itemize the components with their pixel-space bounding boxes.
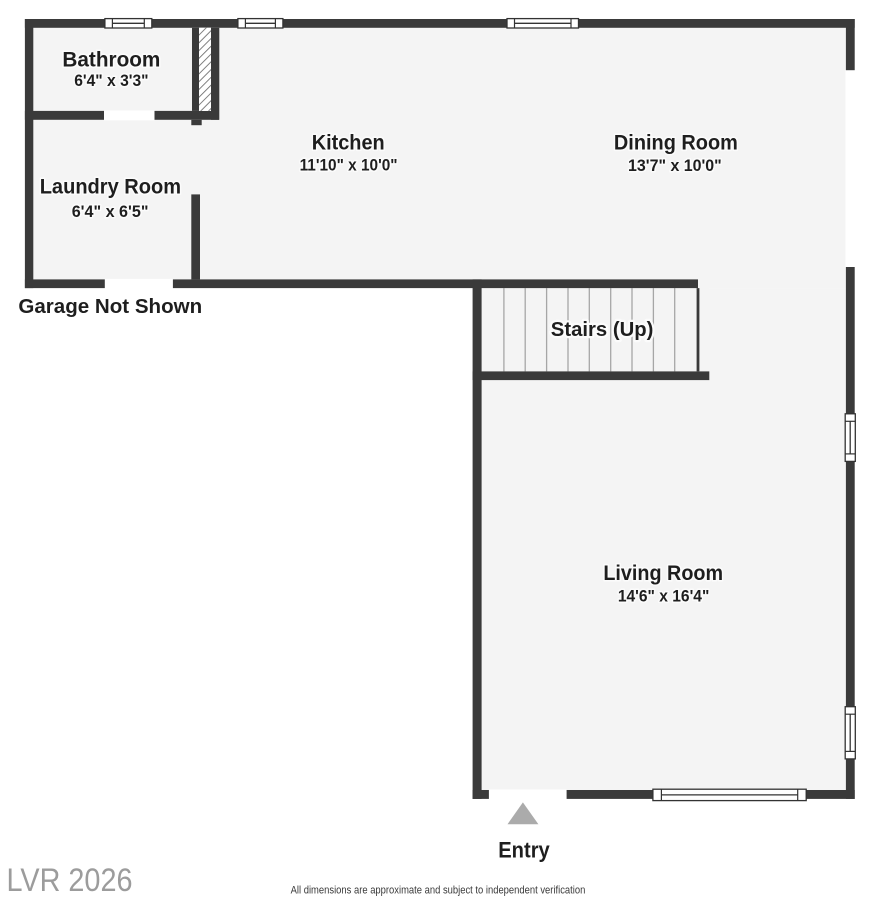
- svg-text:11'10" x 10'0": 11'10" x 10'0": [300, 156, 398, 175]
- svg-text:Bathroom: Bathroom: [62, 48, 160, 72]
- svg-text:Garage Not Shown: Garage Not Shown: [18, 295, 202, 318]
- svg-text:All dimensions are approximate: All dimensions are approximate and subje…: [291, 884, 586, 896]
- svg-text:Laundry Room: Laundry Room: [40, 174, 181, 198]
- svg-text:Dining Room: Dining Room: [614, 131, 738, 155]
- svg-text:Living Room: Living Room: [603, 561, 723, 585]
- svg-text:14'6" x 16'4": 14'6" x 16'4": [618, 587, 710, 606]
- svg-text:Kitchen: Kitchen: [312, 131, 385, 155]
- svg-text:Entry: Entry: [498, 837, 550, 862]
- svg-text:Stairs (Up): Stairs (Up): [551, 319, 654, 341]
- svg-text:6'4" x 3'3": 6'4" x 3'3": [74, 71, 148, 90]
- svg-text:6'4" x 6'5": 6'4" x 6'5": [72, 202, 149, 221]
- svg-text:LVR 2026: LVR 2026: [7, 862, 133, 898]
- svg-text:13'7" x 10'0": 13'7" x 10'0": [628, 156, 722, 175]
